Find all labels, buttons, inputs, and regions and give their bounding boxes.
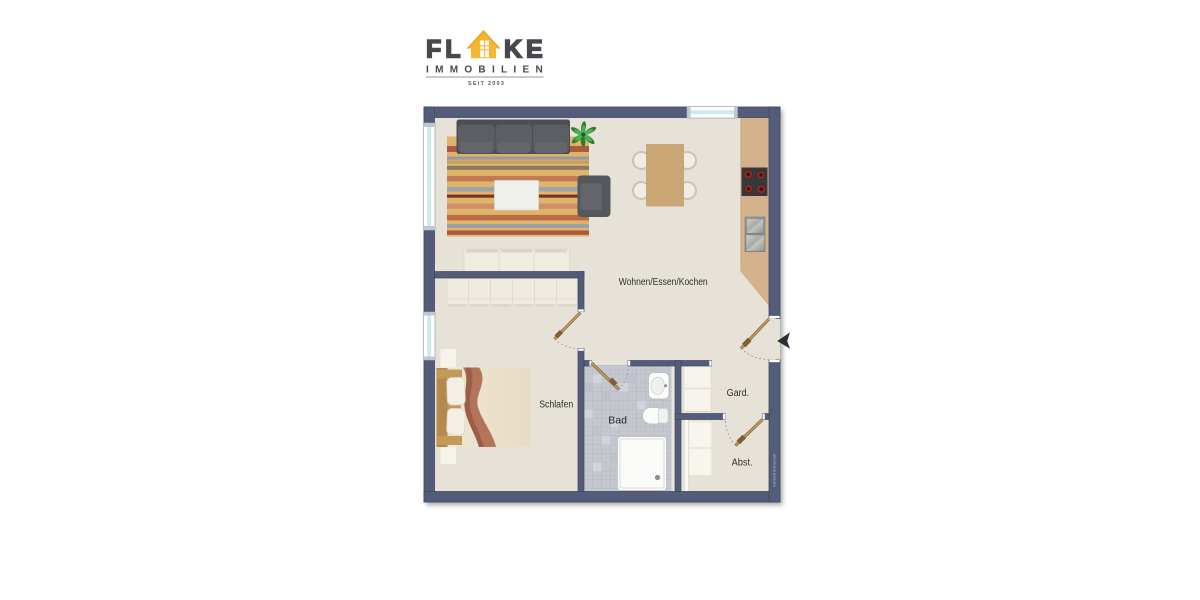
svg-text:Wohnen/Essen/Kochen: Wohnen/Essen/Kochen xyxy=(619,277,708,288)
svg-text:Immobilienplan: Immobilienplan xyxy=(772,453,777,487)
svg-text:Gard.: Gard. xyxy=(727,388,750,399)
svg-text:FL: FL xyxy=(426,36,465,64)
svg-text:SEIT 2003: SEIT 2003 xyxy=(468,81,505,87)
svg-text:IMMOBILIEN: IMMOBILIEN xyxy=(426,65,549,76)
svg-text:Abst.: Abst. xyxy=(732,458,753,469)
svg-text:Schlafen: Schlafen xyxy=(539,399,573,410)
svg-text:KE: KE xyxy=(504,36,547,64)
svg-text:Bad: Bad xyxy=(608,415,627,427)
